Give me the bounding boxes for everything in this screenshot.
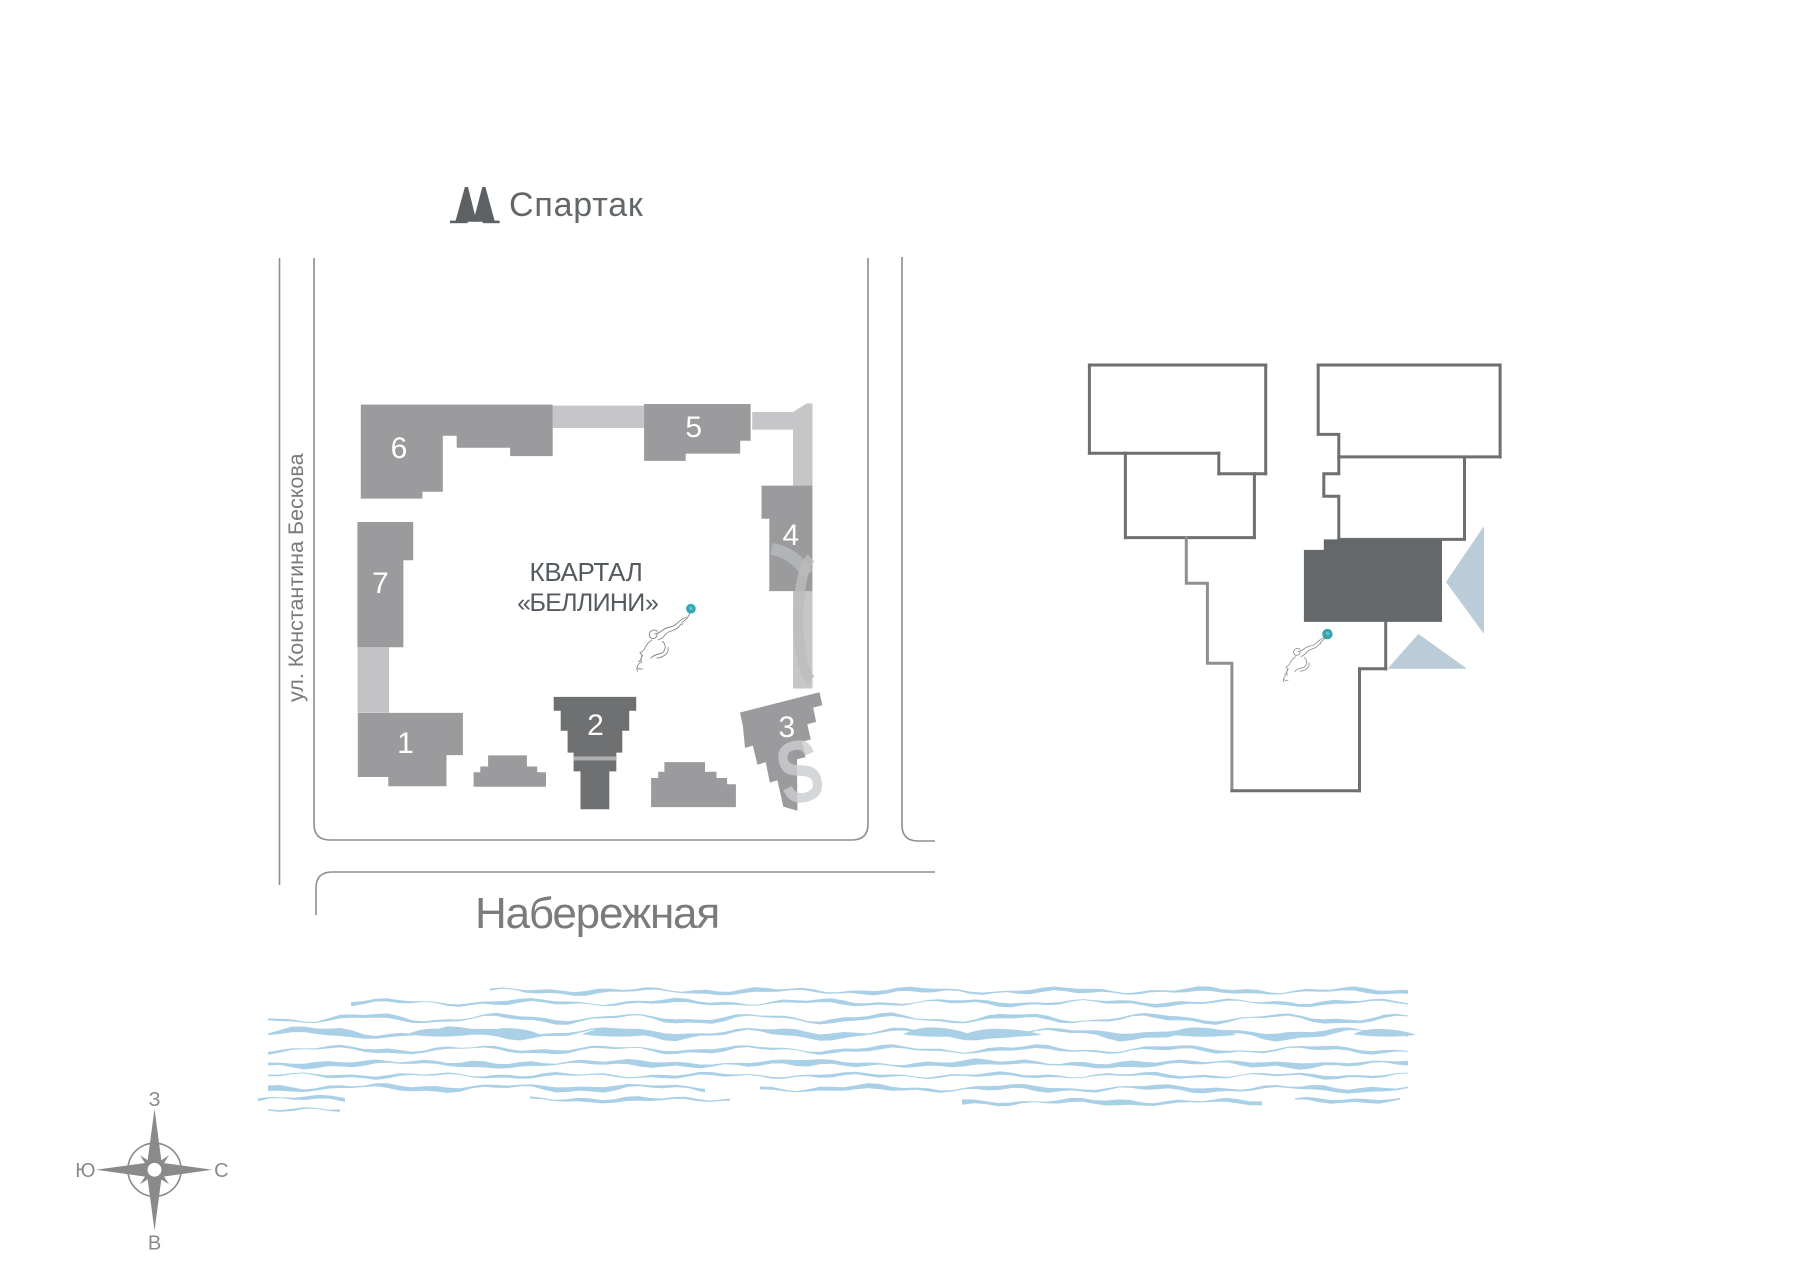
svg-text:6: 6	[391, 432, 408, 465]
svg-text:З: З	[148, 1089, 160, 1111]
svg-text:2: 2	[587, 709, 604, 742]
svg-text:Ю: Ю	[75, 1160, 95, 1182]
svg-text:В: В	[148, 1233, 161, 1255]
svg-text:«: «	[517, 589, 531, 617]
svg-text:ул. Константина Бескова: ул. Константина Бескова	[284, 453, 308, 702]
svg-text:5: 5	[685, 411, 702, 444]
svg-text:»: »	[645, 589, 659, 617]
svg-text:Набережная: Набережная	[475, 889, 719, 938]
svg-text:S: S	[767, 720, 832, 825]
svg-text:БЕЛЛИНИ: БЕЛЛИНИ	[530, 589, 645, 617]
svg-text:1: 1	[397, 727, 414, 760]
svg-text:КВАРТАЛ: КВАРТАЛ	[529, 557, 642, 587]
svg-text:7: 7	[372, 567, 389, 600]
svg-text:Спартак: Спартак	[509, 186, 644, 224]
svg-text:С: С	[214, 1160, 228, 1182]
